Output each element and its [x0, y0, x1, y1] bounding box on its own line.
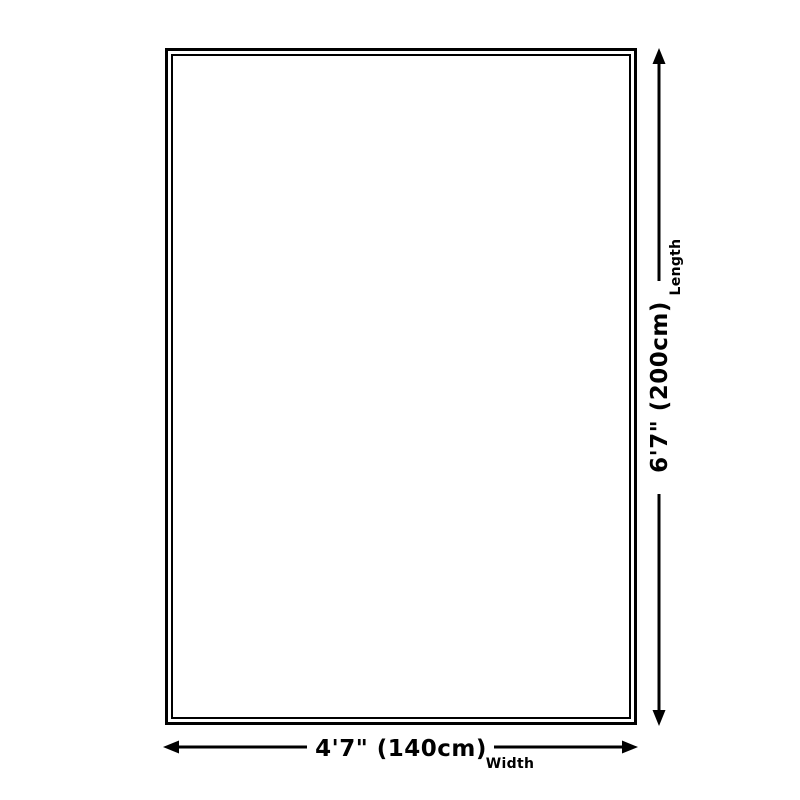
- arrow-down-icon: [653, 710, 666, 726]
- arrow-right-icon: [622, 741, 638, 754]
- length-value: 6'7" (200cm): [647, 301, 673, 473]
- width-label: Width: [486, 756, 534, 772]
- width-value: 4'7" (140cm): [315, 736, 487, 762]
- size-diagram: 6'7" (200cm) Length 4'7" (140cm) Width: [0, 0, 800, 800]
- rug-inner-outline: [171, 54, 631, 719]
- length-label: Length: [668, 239, 684, 296]
- rug-outer-outline: [165, 48, 637, 725]
- arrow-up-icon: [653, 48, 666, 64]
- arrow-left-icon: [163, 741, 179, 754]
